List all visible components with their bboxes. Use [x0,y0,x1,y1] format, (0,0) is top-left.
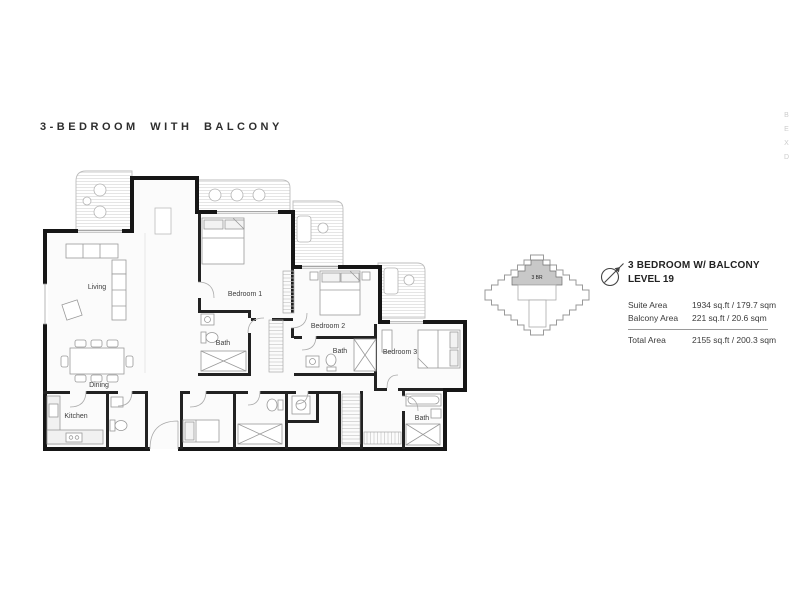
key-plan-unit-label: 3 BR [531,275,543,281]
laundry-machine [292,396,310,414]
floor-plan: Living Dining Kitchen Bedroom 1 Bath Bed… [40,168,470,460]
room-label-bath3: Bath [415,415,430,422]
core-block [518,285,556,300]
area-row-balcony: Balcony Area 221 sq.ft / 20.6 sqm [628,313,786,323]
area-value: 2155 sq.ft / 200.3 sqm [692,335,776,345]
area-value: 221 sq.ft / 20.6 sqm [692,313,767,323]
room-label-bath2: Bath [333,348,348,355]
unit-info-panel: 3 BEDROOM W/ BALCONY LEVEL 19 Suite Area… [628,260,786,348]
unit-highlight [512,260,562,285]
unit-name: 3 BEDROOM W/ BALCONY [628,260,786,271]
bed-1 [202,218,244,264]
brochure-page: 3-BEDROOM WITH BALCONY [0,0,800,600]
area-label: Total Area [628,335,692,345]
maid-bed [183,420,219,442]
room-label-kitchen: Kitchen [64,413,87,420]
table-divider [628,329,768,330]
room-label-bath1: Bath [216,340,231,347]
key-plan: 3 BR [482,247,594,339]
page-edge-text: BEXD [783,112,790,168]
room-label-living: Living [88,284,106,291]
north-arrow-icon [597,256,631,290]
area-value: 1934 sq.ft / 179.7 sqm [692,300,776,310]
area-table: Suite Area 1934 sq.ft / 179.7 sqm Balcon… [628,300,786,345]
unit-level: LEVEL 19 [628,274,786,285]
area-row-total: Total Area 2155 sq.ft / 200.3 sqm [628,335,786,345]
room-label-bedroom1: Bedroom 1 [228,291,262,298]
area-label: Balcony Area [628,313,692,323]
shaft [155,208,171,234]
room-label-dining: Dining [89,382,109,389]
area-label: Suite Area [628,300,692,310]
room-label-bedroom2: Bedroom 2 [311,323,345,330]
area-row-suite: Suite Area 1934 sq.ft / 179.7 sqm [628,300,786,310]
page-title: 3-BEDROOM WITH BALCONY [40,121,283,133]
room-label-bedroom3: Bedroom 3 [383,349,417,356]
core-stem [529,300,546,327]
